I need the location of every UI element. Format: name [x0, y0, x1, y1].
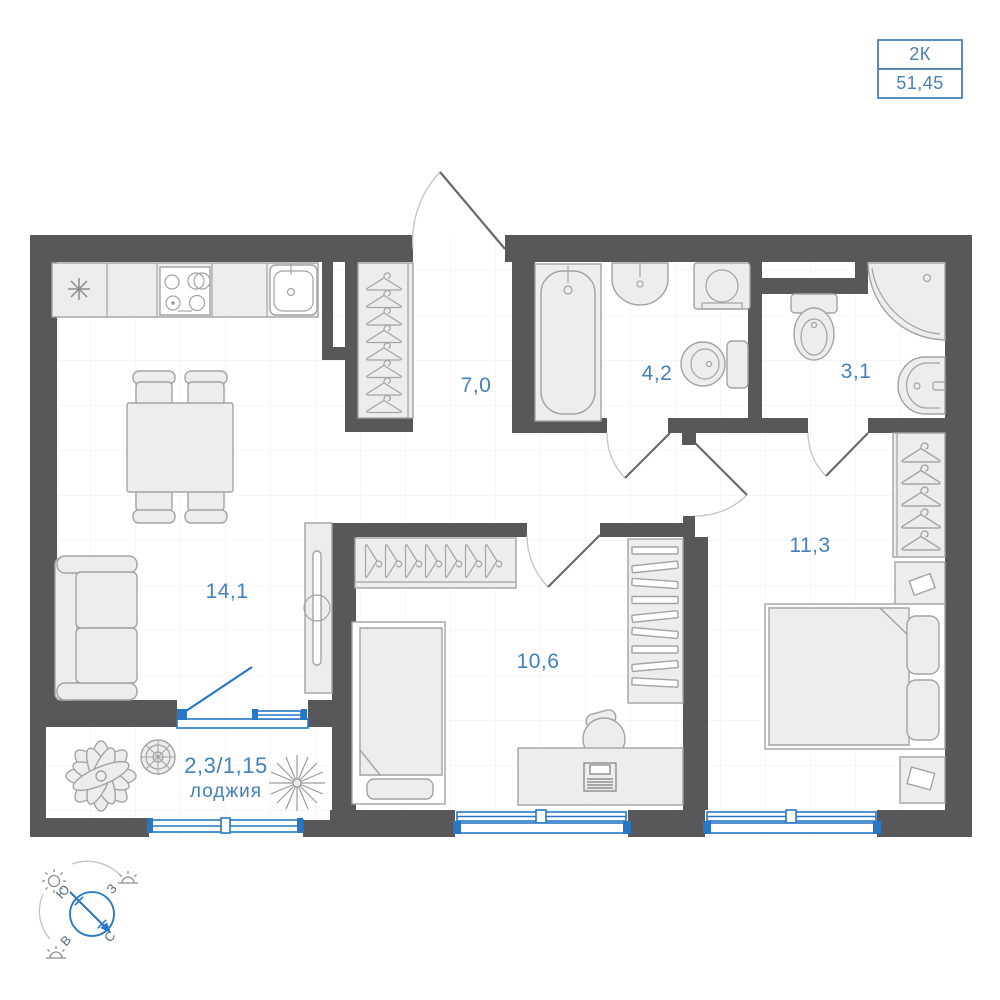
sink-icon: [898, 357, 945, 414]
badge-area: 51,45: [896, 73, 944, 93]
compass-west-label: З: [103, 881, 119, 897]
kitchen-counter: [52, 263, 318, 317]
compass-north-label: С: [101, 928, 118, 945]
stove-icon: [160, 267, 210, 315]
bedroom-area-label: 11,3: [789, 534, 830, 557]
loggia-area-label: 2,3/1,15: [184, 753, 268, 778]
fridge-icon: [68, 278, 90, 300]
plant-icon: [269, 755, 325, 811]
toilet-icon: [791, 294, 837, 360]
sunset-icon: [118, 871, 138, 883]
loggia-name-label: лоджия: [190, 781, 262, 802]
compass-arrow: [70, 892, 111, 933]
compass: Ю З В С: [39, 861, 138, 958]
double-bed: [765, 604, 945, 749]
bathtub-icon: [535, 264, 601, 421]
bathroom-area-label: 4,2: [642, 362, 673, 385]
plant-icon: [66, 741, 136, 811]
toilet-area-label: 3,1: [841, 360, 872, 383]
loggia-window: [147, 818, 303, 833]
wardrobe-child: [355, 538, 516, 588]
floorplan-canvas: 7,0 4,2 3,1 11,3 10,6 14,1 2,3/1,15 лодж…: [0, 0, 1000, 1000]
desk: [518, 748, 683, 805]
child-room-area-label: 10,6: [517, 650, 560, 673]
compass-east-label: В: [57, 932, 74, 949]
plant-icon: [141, 740, 175, 774]
bookshelf: [628, 539, 683, 703]
floorplan-page: 7,0 4,2 3,1 11,3 10,6 14,1 2,3/1,15 лодж…: [0, 0, 1000, 1000]
wardrobe-bedroom: [893, 433, 945, 557]
badge-rooms: 2К: [909, 44, 931, 64]
info-badge: 2К 51,45: [878, 40, 962, 98]
kitchen-sink-icon: [270, 263, 317, 315]
living-room-area-label: 14,1: [206, 580, 249, 603]
wardrobe-hallway: [358, 263, 413, 418]
compass-south-label: Ю: [53, 882, 73, 902]
tv-stand: [304, 523, 332, 693]
nightstand: [900, 757, 945, 803]
sunset-icon: [46, 946, 66, 958]
hallway-area-label: 7,0: [461, 374, 492, 397]
computer-icon: [584, 763, 616, 791]
nightstand: [895, 562, 945, 606]
single-bed: [352, 622, 445, 804]
sofa: [55, 556, 137, 700]
washing-machine-icon: [694, 263, 750, 309]
books: [632, 547, 679, 687]
dining-table: [127, 403, 233, 492]
toilet-icon: [681, 341, 748, 388]
